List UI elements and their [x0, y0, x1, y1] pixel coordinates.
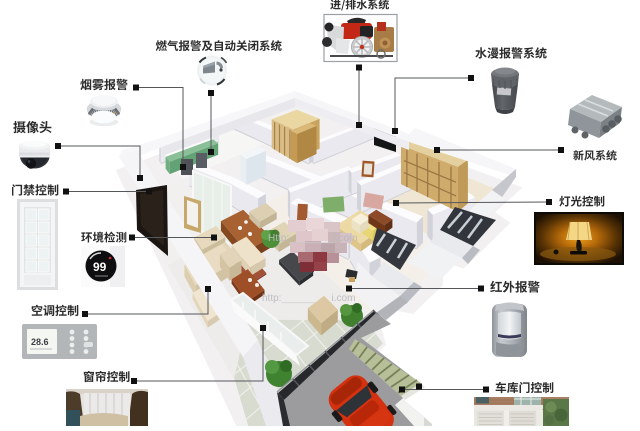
svg-text:Http:________i.com: Http:________i.com: [268, 233, 358, 244]
svg-text:28.6: 28.6: [31, 337, 49, 347]
svg-text:99: 99: [93, 260, 107, 274]
svg-text:http:_________i.com: http:_________i.com: [262, 293, 355, 304]
